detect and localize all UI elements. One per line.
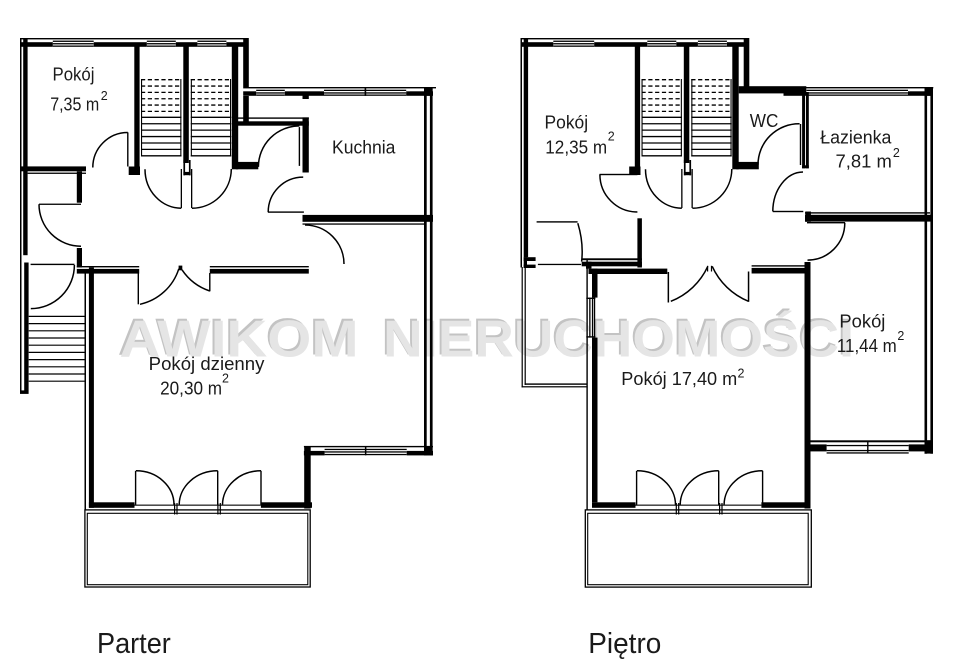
svg-text:2: 2 (897, 329, 904, 343)
svg-text:Pokój: Pokój (839, 311, 885, 332)
svg-text:2: 2 (738, 367, 745, 381)
svg-text:7,81 m: 7,81 m (836, 150, 892, 171)
svg-text:Pokój: Pokój (545, 111, 589, 132)
svg-text:11,44 m: 11,44 m (837, 335, 897, 356)
svg-text:2: 2 (893, 146, 900, 160)
svg-text:Łazienka: Łazienka (820, 126, 892, 147)
svg-text:20,30 m: 20,30 m (160, 378, 222, 399)
svg-text:Pokój dzienny: Pokój dzienny (149, 353, 265, 374)
svg-text:12,35 m: 12,35 m (545, 136, 607, 157)
svg-text:Pokój 17,40 m: Pokój 17,40 m (621, 368, 737, 389)
svg-text:7,35 m: 7,35 m (50, 93, 99, 114)
svg-text:Piętro: Piętro (588, 628, 661, 660)
svg-text:2: 2 (608, 129, 615, 143)
svg-text:2: 2 (101, 89, 108, 103)
svg-text:Kuchnia: Kuchnia (332, 137, 396, 158)
svg-text:Parter: Parter (97, 628, 171, 660)
svg-text:WC: WC (750, 110, 779, 131)
svg-text:Pokój: Pokój (53, 64, 95, 85)
svg-text:2: 2 (222, 372, 229, 386)
svg-text:NIERUCHOMOŚCI: NIERUCHOMOŚCI (383, 310, 854, 368)
